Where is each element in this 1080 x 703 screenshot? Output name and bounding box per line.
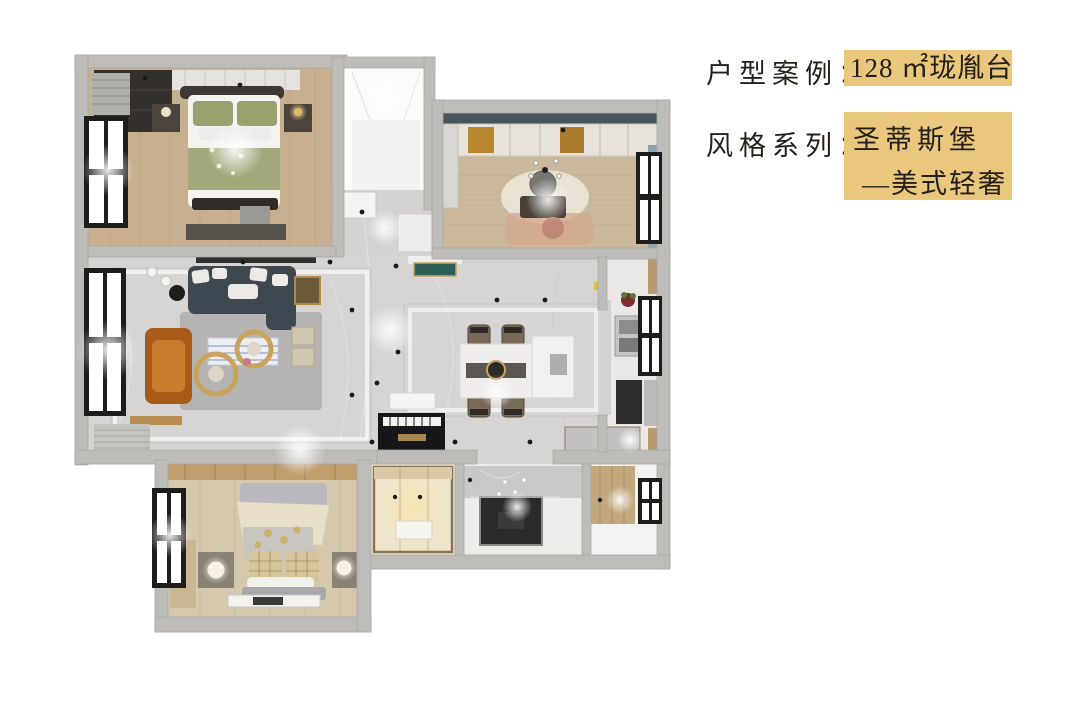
- rear-balcony-window: [638, 478, 662, 524]
- page: 户型案例： 128 ㎡珑胤台 风格系列： 圣蒂斯堡 —美式轻奢: [0, 0, 1080, 703]
- kitchen-window: [638, 296, 662, 376]
- study-window: [636, 152, 662, 244]
- floorplan-render: [0, 0, 1080, 703]
